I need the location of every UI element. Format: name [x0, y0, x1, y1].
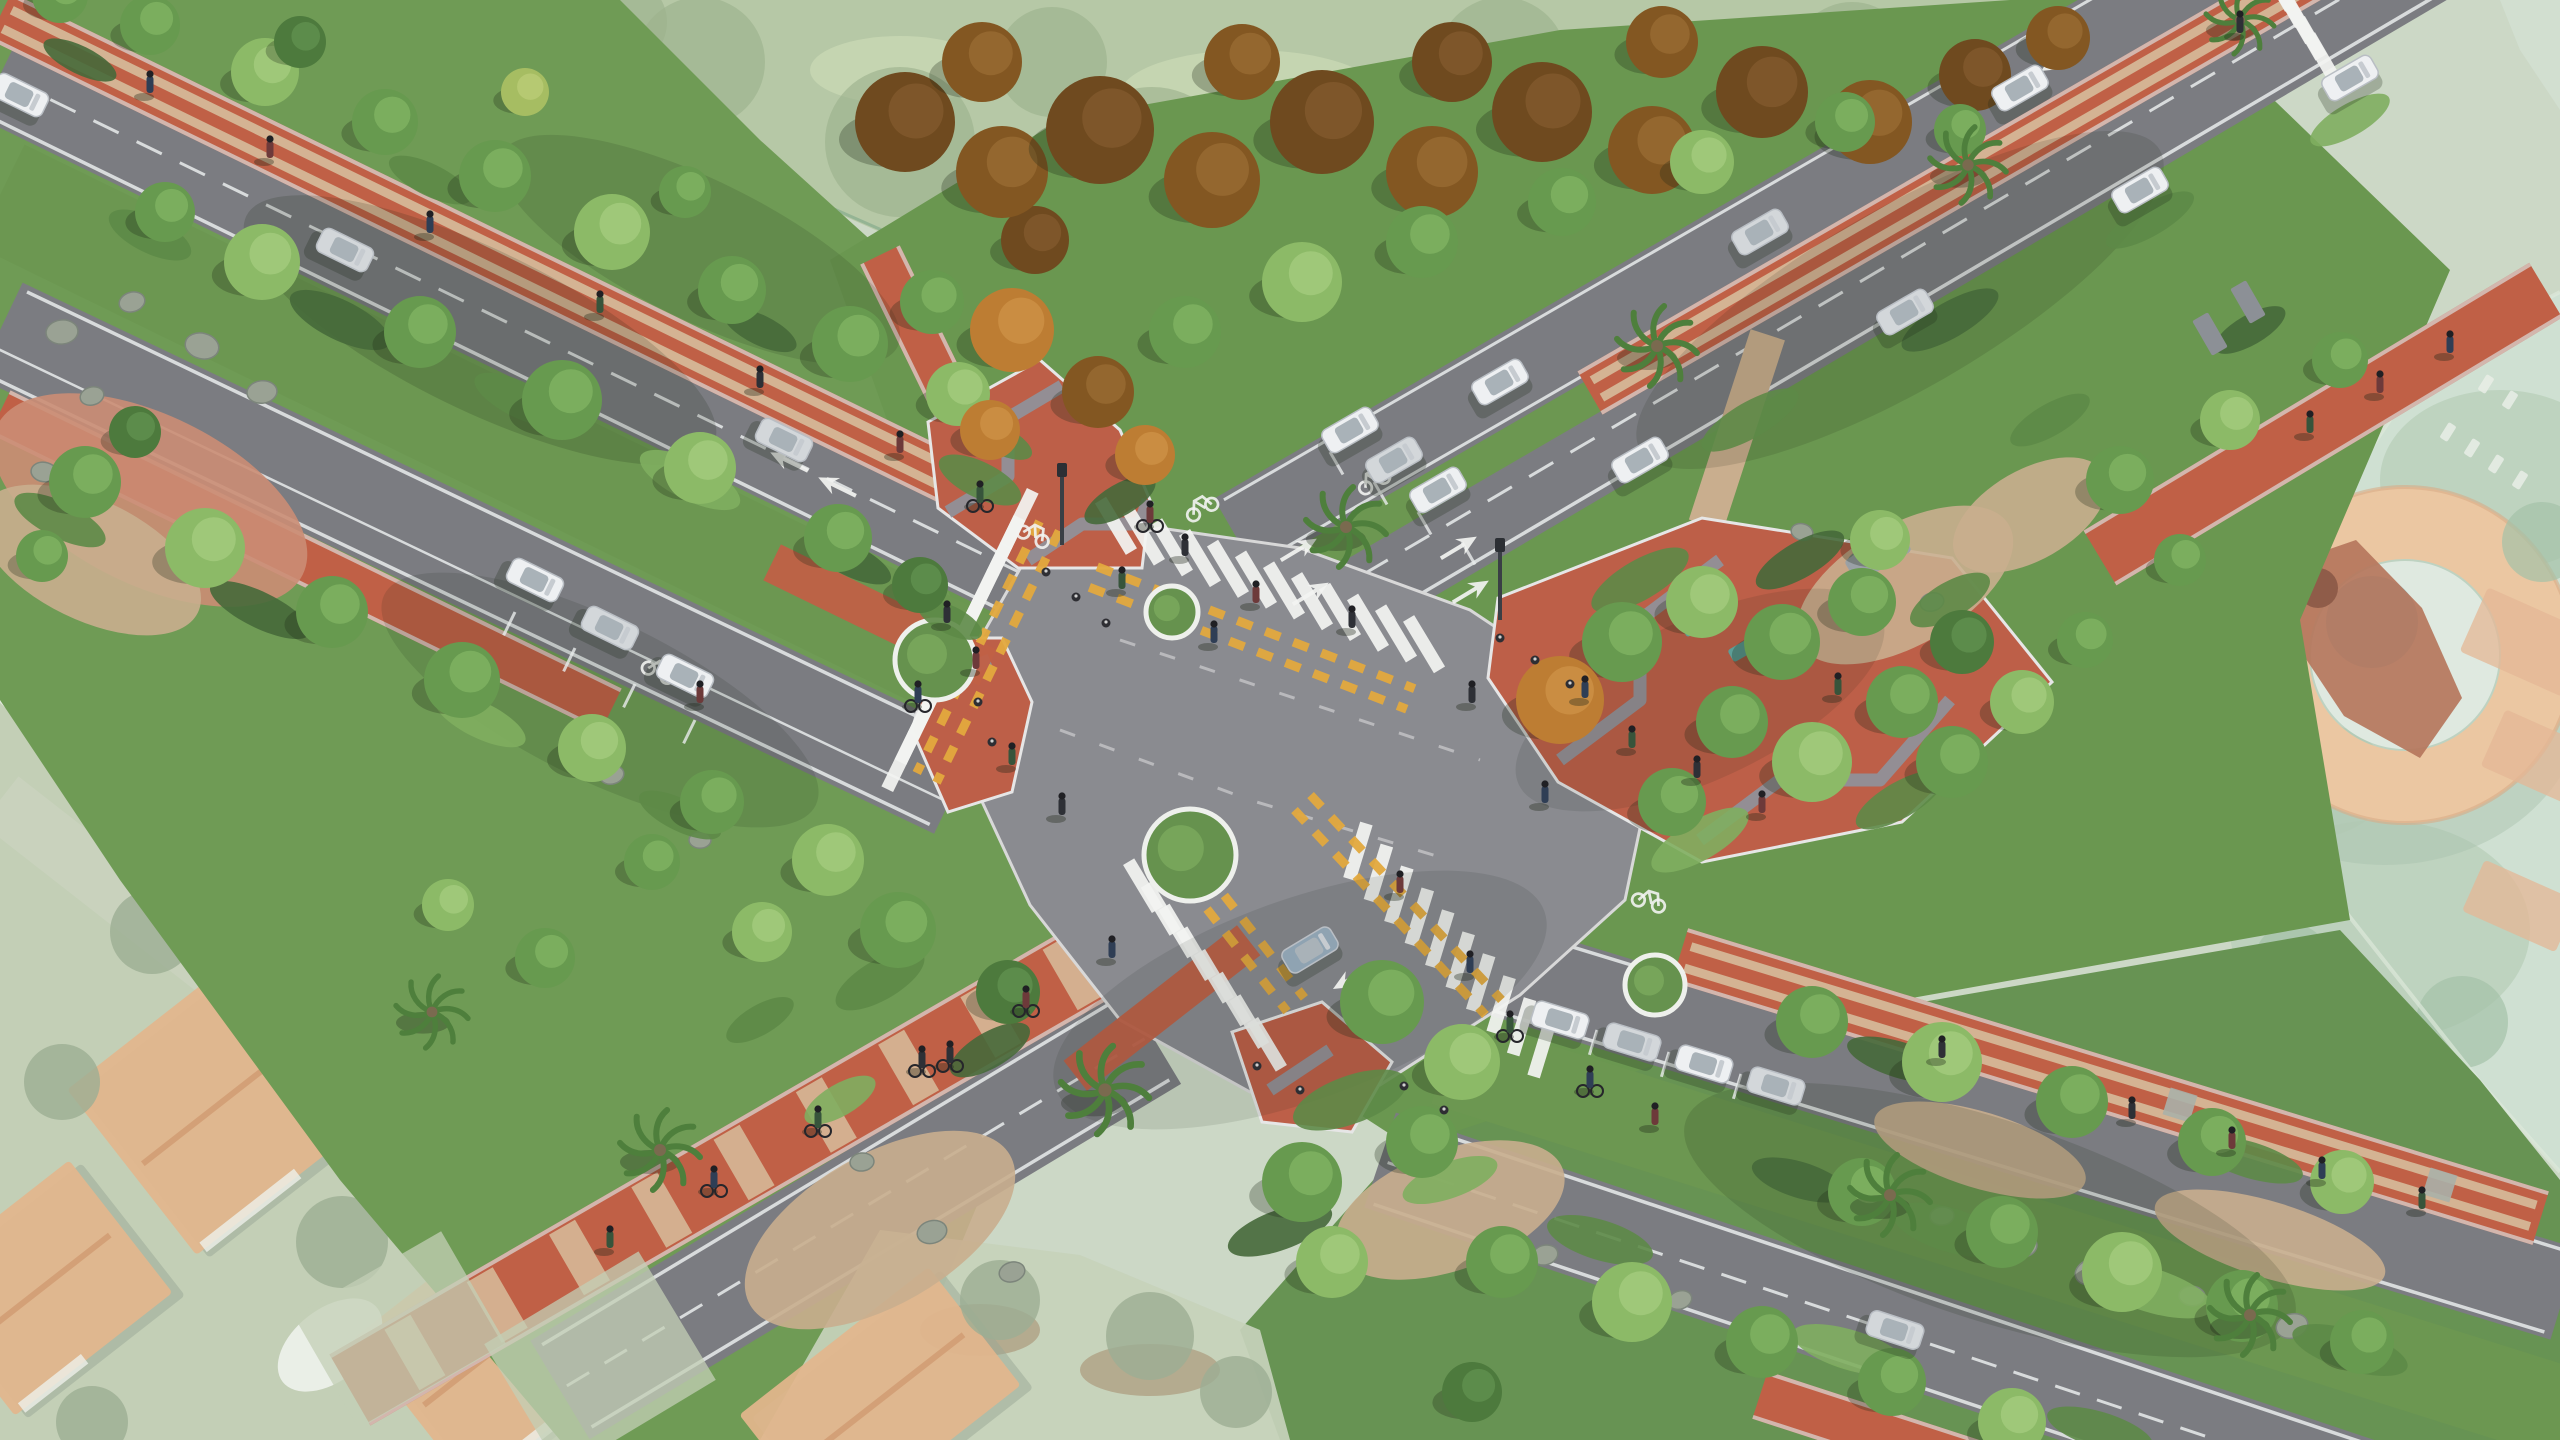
tree-highlight: [1551, 176, 1588, 213]
person-body: [1253, 586, 1260, 603]
person-shadow: [884, 453, 904, 461]
person-head: [1022, 985, 1029, 992]
tree-highlight: [1320, 1234, 1360, 1274]
person-shadow: [996, 765, 1016, 773]
tree-highlight: [1851, 576, 1888, 613]
tree-highlight: [837, 315, 879, 357]
person-body: [1023, 991, 1030, 1008]
person-shadow: [684, 703, 704, 711]
tree-highlight: [1750, 1314, 1790, 1354]
person-head: [976, 480, 983, 487]
bollard: [1253, 1062, 1262, 1071]
washed-tree: [1106, 1292, 1194, 1380]
person-head: [2446, 330, 2453, 337]
bollard: [1400, 1082, 1409, 1091]
person-body: [711, 1171, 718, 1188]
tree-highlight: [947, 369, 982, 404]
person-head: [1506, 1010, 1513, 1017]
person-shadow: [1529, 803, 1549, 811]
tree-highlight: [1835, 99, 1868, 132]
person-head: [1008, 742, 1015, 749]
tree-highlight: [889, 84, 944, 139]
person-body: [944, 606, 951, 623]
tree-highlight: [549, 369, 593, 413]
bollard-cap: [1298, 1087, 1301, 1090]
tree-highlight: [1410, 1114, 1450, 1154]
tree-highlight: [921, 277, 956, 312]
island-shrub: [907, 634, 947, 674]
washed-tree: [24, 1044, 100, 1120]
person-head: [426, 210, 433, 217]
person-shadow: [931, 623, 951, 631]
person-head: [2236, 10, 2243, 17]
tree-highlight: [1289, 251, 1333, 295]
tree-highlight: [885, 901, 927, 943]
person-body: [1147, 506, 1154, 523]
person-shadow: [1746, 813, 1766, 821]
person-head: [1586, 1065, 1593, 1072]
person-shadow: [2116, 1119, 2136, 1127]
bollard-cap: [1104, 620, 1107, 623]
person-head: [146, 70, 153, 77]
palm-crown: [1651, 340, 1663, 352]
person-head: [814, 1105, 821, 1112]
tree-highlight: [140, 2, 173, 35]
person-shadow: [1456, 703, 1476, 711]
person-body: [1059, 798, 1066, 815]
tree-highlight: [1305, 82, 1362, 139]
person-head: [2318, 1156, 2325, 1163]
person-head: [1834, 672, 1841, 679]
median-nose-island: [1144, 809, 1236, 901]
person-shadow: [1384, 893, 1404, 901]
tree-highlight: [1650, 14, 1690, 54]
person-shadow: [1926, 1058, 1946, 1066]
person-body: [1582, 681, 1589, 698]
tree-highlight: [1747, 57, 1798, 108]
tree-highlight: [721, 264, 758, 301]
person-body: [1652, 1108, 1659, 1125]
screenshot-root: [0, 0, 2560, 1440]
tree-highlight: [2220, 397, 2253, 430]
person-shadow: [1616, 748, 1636, 756]
tree-highlight: [969, 31, 1013, 75]
person-shadow: [414, 233, 434, 241]
tree-highlight: [827, 512, 864, 549]
person-body: [607, 1231, 614, 1248]
bollard: [1296, 1086, 1305, 1095]
person-shadow: [2434, 353, 2454, 361]
person-head: [918, 1045, 925, 1052]
tree-highlight: [2047, 13, 2082, 48]
tree-highlight: [155, 189, 188, 222]
bollard-cap: [1533, 657, 1536, 660]
person-body: [1467, 956, 1474, 973]
bollard: [1440, 1106, 1449, 1115]
person-head: [1108, 935, 1115, 942]
tree-highlight: [1799, 731, 1843, 775]
tree-highlight: [126, 412, 155, 441]
person-shadow: [1169, 556, 1189, 564]
person-head: [1651, 1102, 1658, 1109]
tree-highlight: [1229, 33, 1271, 75]
person-head: [2228, 1126, 2235, 1133]
person-body: [2319, 1162, 2326, 1179]
person-body: [1835, 678, 1842, 695]
bollard-cap: [1044, 569, 1047, 572]
bollard-cap: [1255, 1063, 1258, 1066]
bollard: [1042, 568, 1051, 577]
bollard-cap: [1498, 635, 1501, 638]
person-head: [1581, 675, 1588, 682]
tree-highlight: [599, 203, 641, 245]
tree-highlight: [980, 407, 1013, 440]
tree-highlight: [1082, 88, 1141, 147]
person-body: [915, 686, 922, 703]
bollard: [1531, 656, 1540, 665]
tree-highlight: [1769, 613, 1811, 655]
person-body: [1211, 626, 1218, 643]
tree-highlight: [483, 148, 523, 188]
tree-highlight: [439, 885, 468, 914]
person-body: [1587, 1071, 1594, 1088]
tree-highlight: [1086, 364, 1126, 404]
person-body: [977, 486, 984, 503]
tree-highlight: [2331, 338, 2362, 369]
person-body: [267, 141, 274, 158]
person-head: [696, 680, 703, 687]
tree-highlight: [1929, 1031, 1973, 1075]
tree-highlight: [998, 298, 1044, 344]
person-shadow: [594, 1248, 614, 1256]
person-head: [1628, 725, 1635, 732]
person-head: [972, 646, 979, 653]
person-head: [1693, 755, 1700, 762]
person-shadow: [1096, 958, 1116, 966]
tree-highlight: [688, 440, 728, 480]
person-body: [597, 296, 604, 313]
person-head: [710, 1165, 717, 1172]
tree-highlight: [73, 454, 113, 494]
tree-highlight: [1410, 214, 1450, 254]
tree-highlight: [192, 517, 236, 561]
tree-highlight: [816, 832, 856, 872]
bollard-cap: [1442, 1107, 1445, 1110]
tree-highlight: [1690, 574, 1730, 614]
island-shrub: [1154, 595, 1180, 621]
person-head: [2128, 1096, 2135, 1103]
palm-crown: [1884, 1189, 1896, 1201]
person-body: [2377, 376, 2384, 393]
person-shadow: [254, 158, 274, 166]
bollard: [974, 698, 983, 707]
tree-highlight: [2109, 1241, 2153, 1285]
palm-crown: [427, 1007, 438, 1018]
person-shadow: [1454, 973, 1474, 981]
person-head: [1348, 605, 1355, 612]
person-body: [1507, 1016, 1514, 1033]
person-shadow: [1639, 1125, 1659, 1133]
bollard: [1072, 593, 1081, 602]
median-nose-island: [1146, 586, 1198, 638]
person-body: [2237, 16, 2244, 33]
person-head: [756, 365, 763, 372]
bollard-cap: [1402, 1083, 1405, 1086]
person-body: [1182, 539, 1189, 556]
tree-highlight: [1173, 304, 1213, 344]
person-head: [2418, 1186, 2425, 1193]
tree-highlight: [2331, 1157, 2366, 1192]
bollard-cap: [990, 739, 993, 742]
person-shadow: [1822, 695, 1842, 703]
tree-highlight: [1024, 214, 1061, 251]
person-shadow: [1336, 628, 1356, 636]
person-shadow: [2294, 433, 2314, 441]
person-shadow: [960, 669, 980, 677]
palm-crown: [1962, 159, 1973, 170]
bollard: [1496, 634, 1505, 643]
person-body: [2129, 1102, 2136, 1119]
tree-highlight: [1881, 1356, 1918, 1393]
tree-highlight: [2001, 1396, 2038, 1433]
island-shrub: [1634, 966, 1664, 996]
person-head: [1058, 792, 1065, 799]
person-body: [427, 216, 434, 233]
person-head: [596, 290, 603, 297]
bollard: [1102, 619, 1111, 628]
person-body: [757, 371, 764, 388]
palm-crown: [2244, 1309, 2256, 1321]
person-head: [2376, 370, 2383, 377]
person-body: [147, 76, 154, 93]
person-shadow: [2306, 1179, 2326, 1187]
palm-crown: [1098, 1083, 1111, 1096]
tree-highlight: [1439, 31, 1483, 75]
tree-highlight: [676, 172, 705, 201]
tree-highlight: [1490, 1234, 1530, 1274]
tree-highlight: [1800, 994, 1840, 1034]
bollard-cap: [1568, 681, 1571, 684]
person-head: [943, 600, 950, 607]
person-body: [1009, 748, 1016, 765]
person-body: [919, 1051, 926, 1068]
person-body: [1694, 761, 1701, 778]
tree-highlight: [1196, 143, 1249, 196]
person-body: [1119, 572, 1126, 589]
person-body: [1469, 686, 1476, 703]
person-head: [1396, 870, 1403, 877]
person-head: [1541, 780, 1548, 787]
bollard-cap: [976, 699, 979, 702]
person-shadow: [2216, 1149, 2236, 1157]
tree-highlight: [1135, 432, 1168, 465]
tree-highlight: [1462, 1369, 1495, 1402]
person-shadow: [1240, 603, 1260, 611]
person-head: [1938, 1035, 1945, 1042]
tree-highlight: [535, 935, 568, 968]
bollard: [1566, 680, 1575, 689]
tree-highlight: [2351, 1317, 2386, 1352]
person-head: [1466, 950, 1473, 957]
bollard: [988, 738, 997, 747]
tree-highlight: [2011, 677, 2046, 712]
person-body: [1629, 731, 1636, 748]
person-shadow: [584, 313, 604, 321]
person-head: [896, 430, 903, 437]
person-head: [2306, 410, 2313, 417]
tree-highlight: [643, 840, 674, 871]
person-body: [947, 1046, 954, 1063]
tree-highlight: [1951, 617, 1986, 652]
person-body: [1109, 941, 1116, 958]
person-shadow: [1046, 815, 1066, 823]
person-head: [1181, 533, 1188, 540]
person-head: [1468, 680, 1475, 687]
person-shadow: [2364, 393, 2384, 401]
island-shrub: [1158, 825, 1204, 871]
tree-highlight: [701, 777, 736, 812]
person-head: [1118, 566, 1125, 573]
tree-highlight: [374, 97, 410, 133]
person-shadow: [744, 388, 764, 396]
person-head: [1210, 620, 1217, 627]
person-body: [1939, 1041, 1946, 1058]
palm-crown: [654, 1144, 666, 1156]
person-body: [973, 652, 980, 669]
person-head: [266, 135, 273, 142]
tree-highlight: [2076, 618, 2107, 649]
tree-highlight: [1963, 47, 2003, 87]
median-nose-island: [1625, 955, 1685, 1015]
tree-highlight: [291, 22, 320, 51]
person-body: [1759, 796, 1766, 813]
tree-highlight: [1870, 517, 1903, 550]
person-shadow: [1198, 643, 1218, 651]
tree-highlight: [1720, 694, 1760, 734]
person-body: [1542, 786, 1549, 803]
person-body: [1397, 876, 1404, 893]
person-body: [1349, 611, 1356, 628]
person-body: [897, 436, 904, 453]
palm-crown: [1340, 521, 1352, 533]
person-head: [914, 680, 921, 687]
tree-highlight: [581, 722, 618, 759]
tree-highlight: [1691, 137, 1726, 172]
washed-tree: [1200, 1356, 1272, 1428]
signal-head: [1495, 538, 1505, 552]
tree-highlight: [320, 584, 360, 624]
person-shadow: [1681, 778, 1701, 786]
tree-highlight: [1526, 74, 1581, 129]
person-shadow: [1569, 698, 1589, 706]
person-body: [815, 1111, 822, 1128]
person-head: [606, 1225, 613, 1232]
person-body: [2419, 1192, 2426, 1209]
bollard-cap: [1074, 594, 1077, 597]
tree-highlight: [1417, 137, 1468, 188]
tree-highlight: [517, 74, 543, 100]
person-body: [697, 686, 704, 703]
person-body: [2229, 1132, 2236, 1149]
person-shadow: [134, 93, 154, 101]
tree-highlight: [408, 304, 448, 344]
person-head: [1146, 500, 1153, 507]
tree-highlight: [2060, 1074, 2100, 1114]
tree-highlight: [1619, 1271, 1663, 1315]
tree-highlight: [1368, 970, 1414, 1016]
tree-highlight: [1890, 674, 1930, 714]
tree-highlight: [752, 909, 785, 942]
signal-head: [1057, 463, 1067, 477]
person-head: [946, 1040, 953, 1047]
person-body: [2447, 336, 2454, 353]
tree-highlight: [2171, 540, 2200, 569]
person-shadow: [2224, 33, 2244, 41]
tree-highlight: [2109, 454, 2146, 491]
tree-highlight: [1609, 611, 1653, 655]
person-shadow: [1106, 589, 1126, 597]
person-head: [1252, 580, 1259, 587]
person-shadow: [2406, 1209, 2426, 1217]
aerial-rendering: [0, 0, 2560, 1440]
tree-highlight: [911, 563, 942, 594]
person-body: [2307, 416, 2314, 433]
person-head: [1758, 790, 1765, 797]
tree-highlight: [249, 233, 291, 275]
tree-highlight: [1449, 1033, 1491, 1075]
tree-highlight: [33, 536, 62, 565]
tree-highlight: [449, 651, 491, 693]
tree-highlight: [1940, 734, 1980, 774]
tree-highlight: [1289, 1151, 1333, 1195]
tree-highlight: [1990, 1204, 2030, 1244]
